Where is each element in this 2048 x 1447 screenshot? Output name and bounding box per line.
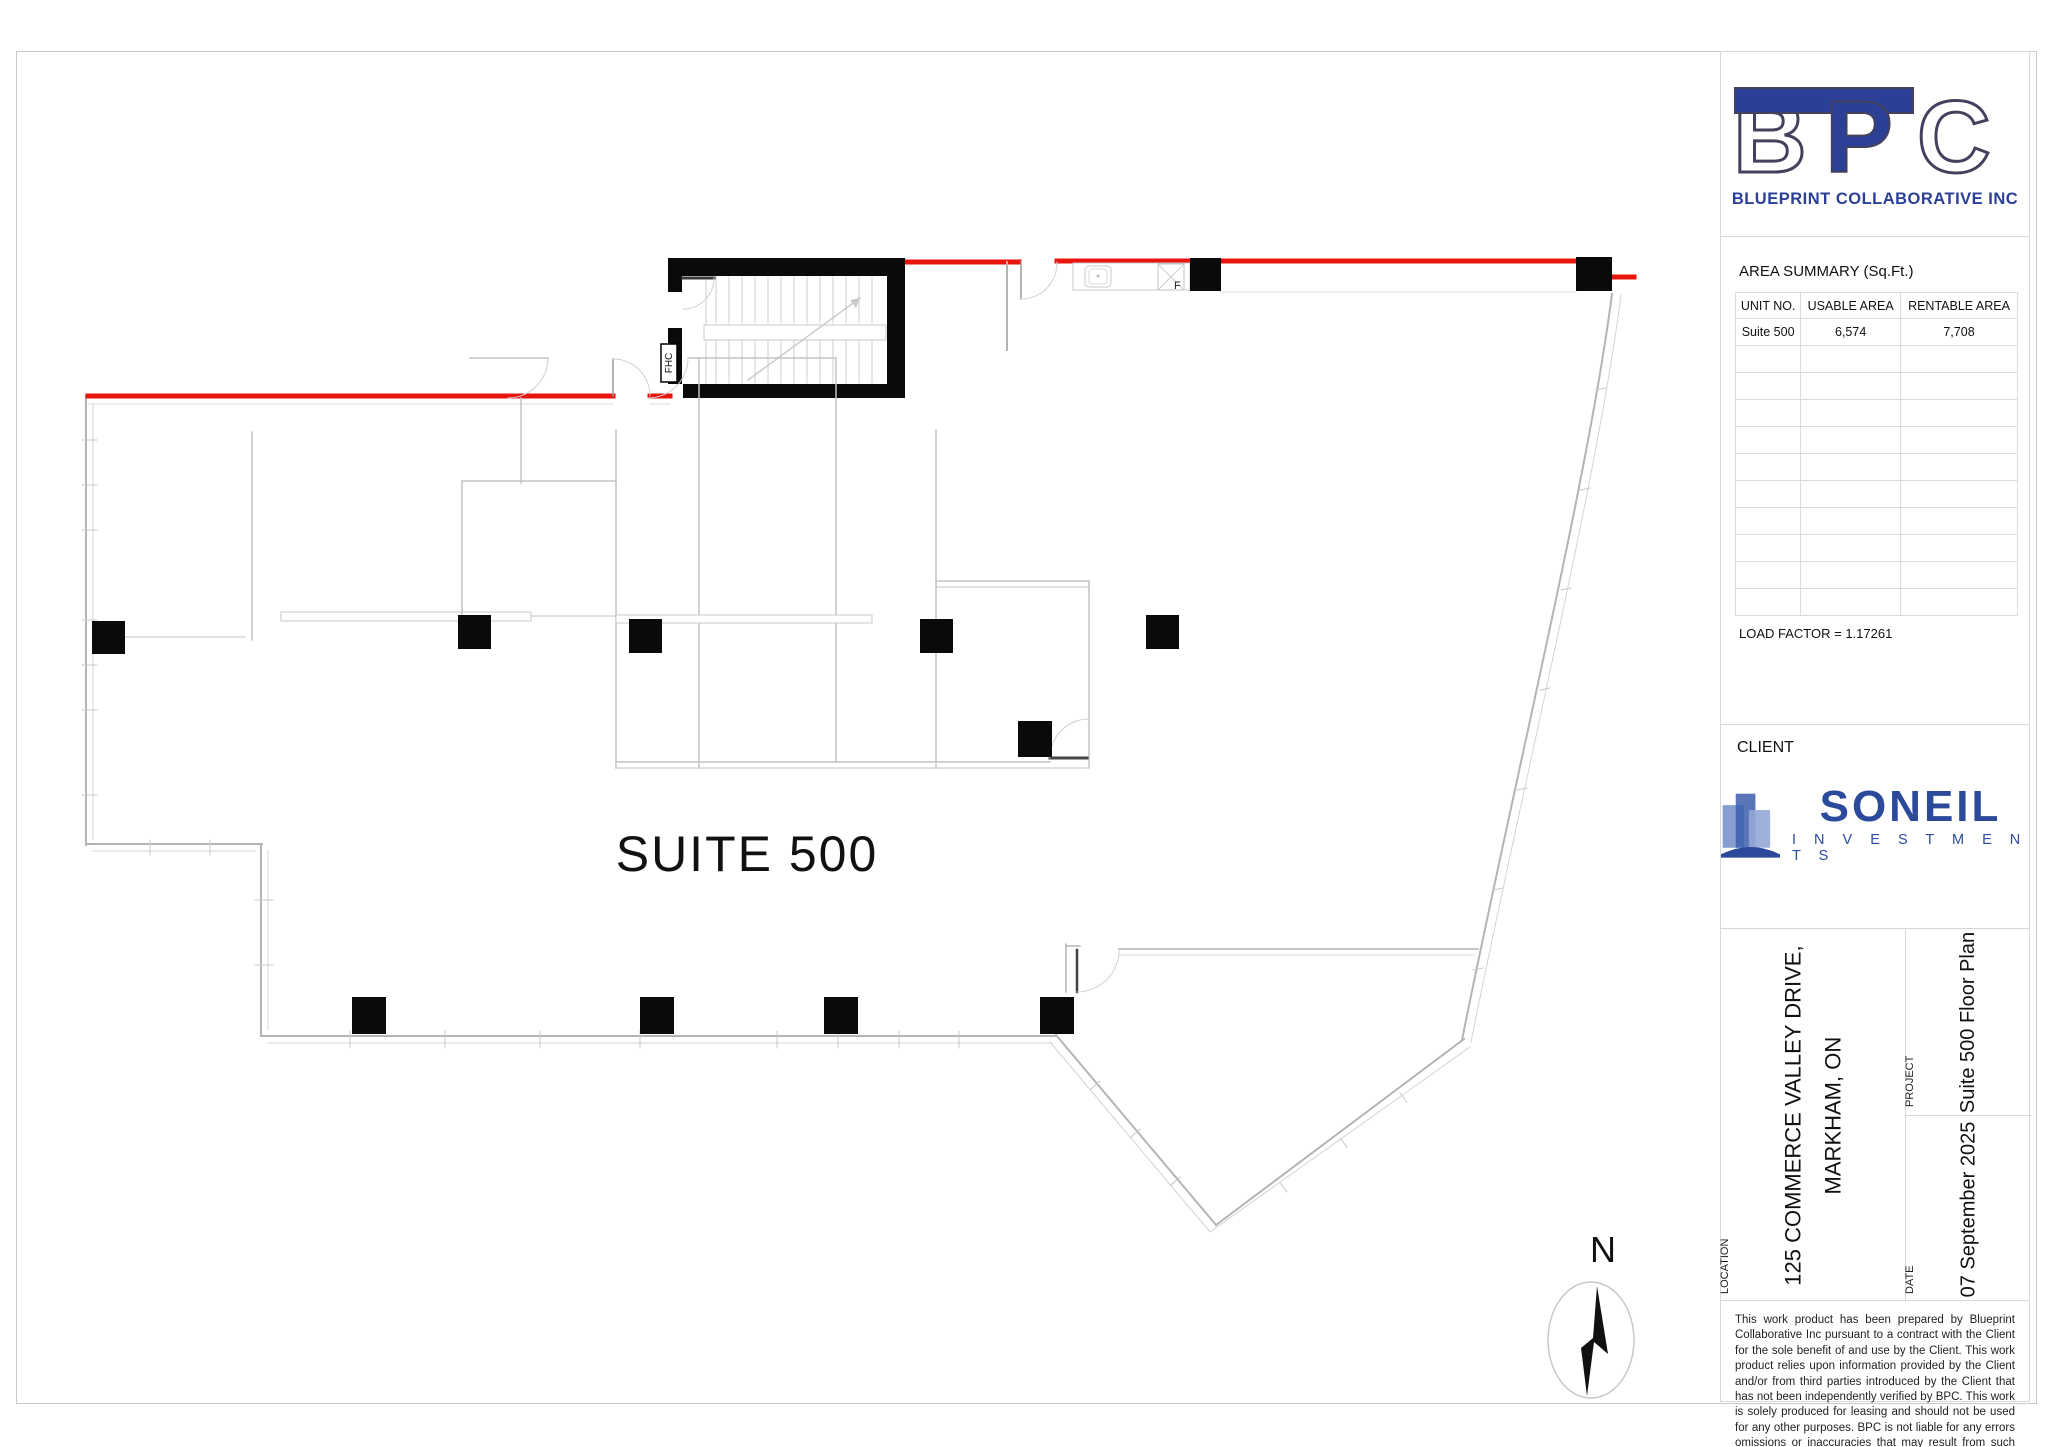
- table-row: [1736, 508, 2018, 535]
- bpc-logo: B P C: [1725, 80, 2025, 188]
- area-summary-table: UNIT NO.USABLE AREARENTABLE AREA Suite 5…: [1735, 292, 2018, 616]
- wing-walls: [1066, 944, 1478, 992]
- table-row: [1736, 373, 2018, 400]
- table-row: [1736, 562, 2018, 589]
- area-summary-cell: [1901, 346, 2018, 373]
- area-summary-cell: [1901, 535, 2018, 562]
- disclaimer-text: This work product has been prepared by B…: [1735, 1313, 2015, 1447]
- area-summary-cell: [1736, 589, 1801, 616]
- area-summary-col-header: USABLE AREA: [1801, 293, 1901, 319]
- table-row: [1736, 481, 2018, 508]
- area-summary-cell: [1736, 373, 1801, 400]
- table-row: [1736, 346, 2018, 373]
- area-summary-cell: [1901, 427, 2018, 454]
- location-line1: 125 COMMERCE VALLEY DRIVE,: [1773, 945, 1813, 1285]
- stairwell: [661, 258, 905, 398]
- exterior-walls-inner: [93, 295, 1621, 1232]
- area-summary-cell: [1736, 481, 1801, 508]
- area-summary-cell: [1736, 346, 1801, 373]
- area-summary-cell: [1901, 454, 2018, 481]
- load-factor: LOAD FACTOR = 1.17261: [1739, 626, 2015, 641]
- area-summary-cell: [1801, 400, 1901, 427]
- soneil-name: SONEIL: [1820, 785, 2002, 829]
- structural-columns: [92, 257, 1612, 1034]
- exterior-walls: [86, 294, 1612, 1225]
- room-door: [1050, 719, 1089, 758]
- location-cell: LOCATION 125 COMMERCE VALLEY DRIVE, MARK…: [1721, 929, 1906, 1302]
- fhc-label: FHC: [664, 353, 675, 374]
- client-box: CLIENT SONEIL I N V E S T M E N T S: [1720, 724, 2030, 929]
- door-left: [613, 359, 650, 396]
- area-summary-cell: [1901, 589, 2018, 616]
- mullion-ticks: [82, 388, 1606, 1192]
- area-summary-cell: [1801, 562, 1901, 589]
- soneil-subname: I N V E S T M E N T S: [1792, 832, 2029, 864]
- table-row: [1736, 454, 2018, 481]
- project-value: Suite 500 Floor Plan: [1957, 931, 1980, 1112]
- area-summary-cell: [1801, 508, 1901, 535]
- table-row: [1736, 535, 2018, 562]
- area-summary-cell: [1801, 427, 1901, 454]
- area-summary-cell: [1736, 508, 1801, 535]
- area-summary-col-header: RENTABLE AREA: [1901, 293, 2018, 319]
- bpc-letter-p: P: [1825, 80, 1893, 188]
- date-cell: DATE 07 September 2025: [1906, 1116, 2031, 1302]
- area-summary-cell: 7,708: [1901, 319, 2018, 346]
- disclaimer-box: This work product has been prepared by B…: [1720, 1300, 2030, 1402]
- drawing-sheet: SUITE 500 N FHC F B P C BLUEPRINT COLLAB…: [0, 0, 2048, 1447]
- area-summary-cell: [1901, 562, 2018, 589]
- area-summary-box: AREA SUMMARY (Sq.Ft.) UNIT NO.USABLE ARE…: [1720, 236, 2030, 725]
- area-summary-cell: [1736, 400, 1801, 427]
- area-summary-col-header: UNIT NO.: [1736, 293, 1801, 319]
- bpc-company-name: BLUEPRINT COLLABORATIVE INC: [1732, 190, 2018, 209]
- area-summary-cell: [1801, 454, 1901, 481]
- area-summary-cell: [1801, 481, 1901, 508]
- door-top: [1021, 262, 1057, 299]
- table-row: [1736, 589, 2018, 616]
- project-cell: PROJECT Suite 500 Floor Plan: [1906, 929, 2031, 1116]
- area-summary-cell: [1736, 454, 1801, 481]
- table-row: Suite 5006,5747,708: [1736, 319, 2018, 346]
- area-summary-header: UNIT NO.USABLE AREARENTABLE AREA: [1736, 293, 2018, 319]
- area-summary-cell: [1801, 535, 1901, 562]
- area-summary-cell: [1901, 400, 2018, 427]
- area-summary-cell: [1736, 562, 1801, 589]
- table-row: [1736, 400, 2018, 427]
- area-summary-cell: [1901, 373, 2018, 400]
- area-summary-cell: [1901, 481, 2018, 508]
- soneil-buildings-icon: [1721, 781, 1780, 867]
- north-compass: [1548, 1282, 1634, 1398]
- area-summary-cell: [1801, 589, 1901, 616]
- north-arrow: [1581, 1286, 1608, 1396]
- bpc-logo-box: B P C BLUEPRINT COLLABORATIVE INC: [1720, 51, 2030, 237]
- area-summary-cell: [1801, 373, 1901, 400]
- area-summary-cell: [1736, 535, 1801, 562]
- north-label: N: [1590, 1229, 1616, 1270]
- soneil-logo: SONEIL I N V E S T M E N T S: [1721, 781, 2029, 867]
- fixture-f-label: F: [1174, 280, 1181, 292]
- wing-door: [1077, 950, 1119, 992]
- table-row: [1736, 427, 2018, 454]
- interior-partitions: [125, 358, 1089, 768]
- client-label: CLIENT: [1737, 739, 1794, 757]
- title-block: LOCATION 125 COMMERCE VALLEY DRIVE, MARK…: [1720, 928, 2030, 1301]
- location-value: 125 COMMERCE VALLEY DRIVE, MARKHAM, ON: [1773, 945, 1852, 1285]
- suite-label: SUITE 500: [616, 826, 879, 882]
- area-summary-cell: [1901, 508, 2018, 535]
- area-summary-title: AREA SUMMARY (Sq.Ft.): [1739, 263, 2015, 280]
- casework-band: [1007, 262, 1190, 350]
- area-summary-cell: 6,574: [1801, 319, 1901, 346]
- bpc-letter-c: C: [1917, 80, 1991, 188]
- date-value: 07 September 2025: [1957, 1121, 1980, 1297]
- area-summary-cell: Suite 500: [1736, 319, 1801, 346]
- area-summary-cell: [1736, 427, 1801, 454]
- area-summary-cell: [1801, 346, 1901, 373]
- location-line2: MARKHAM, ON: [1813, 945, 1853, 1285]
